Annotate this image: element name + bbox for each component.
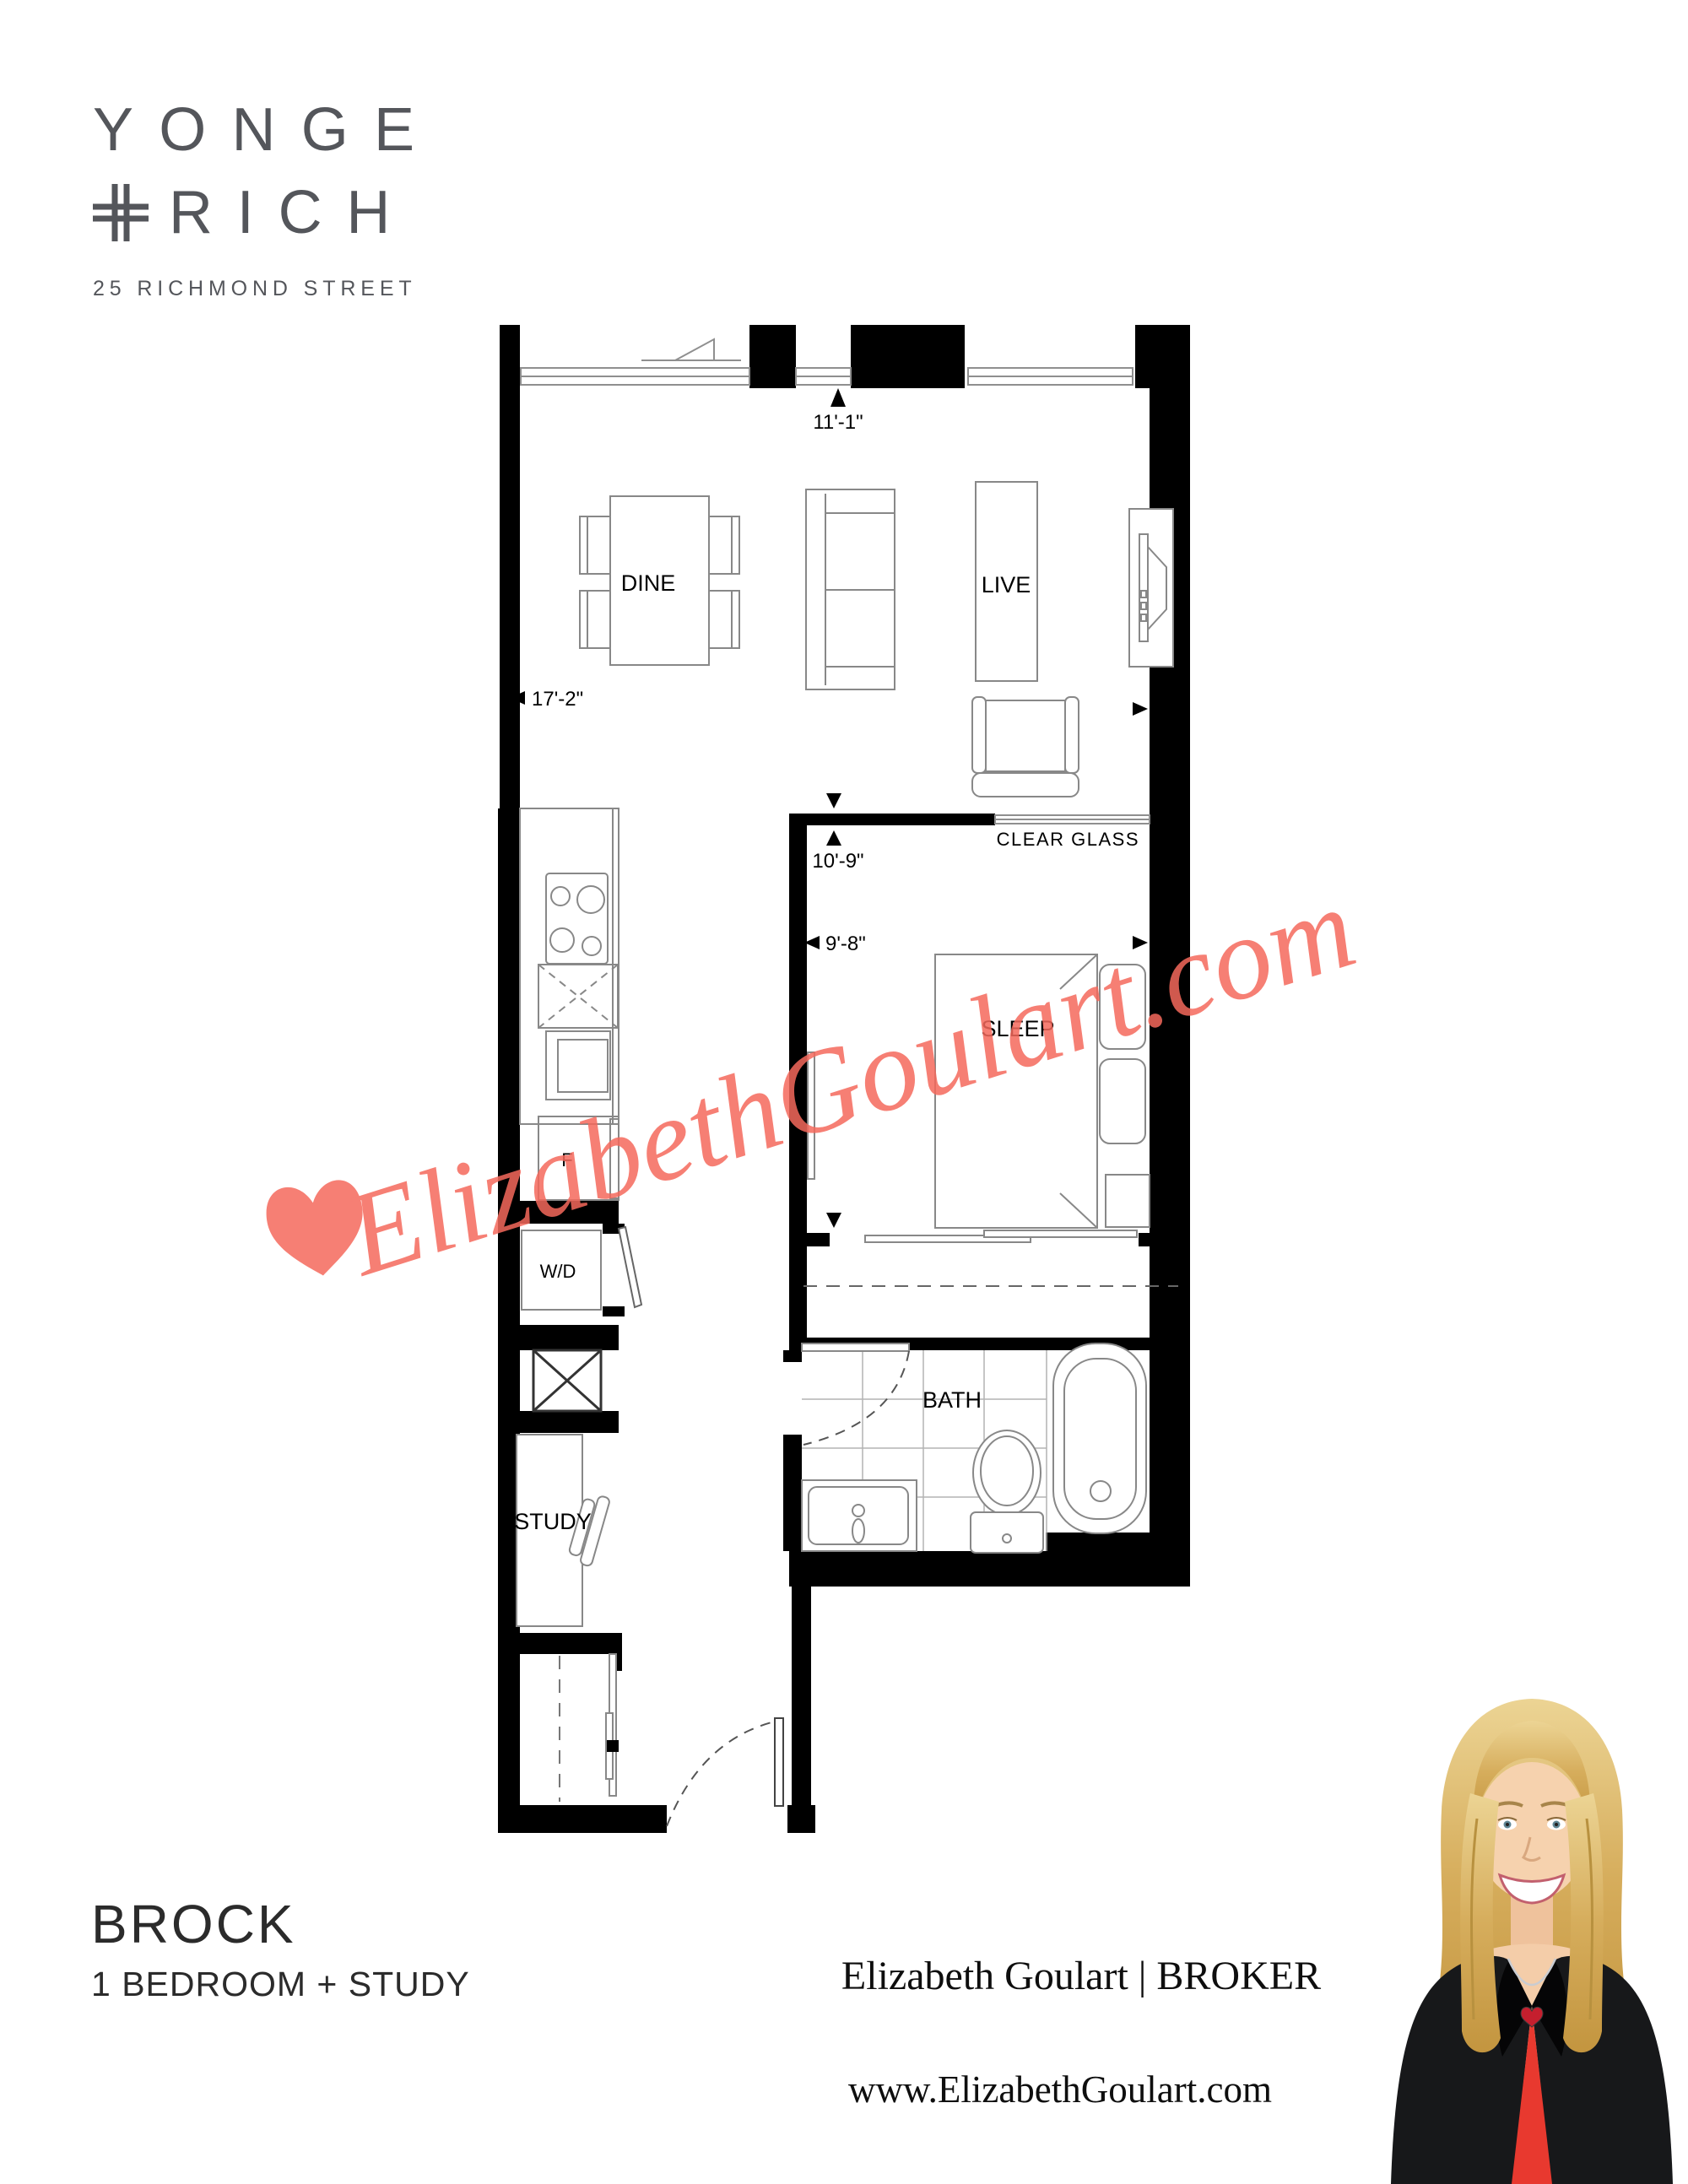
bath-label: BATH [922,1387,982,1413]
dim-arrow-up-icon [830,388,846,407]
window-band [521,368,1133,385]
bath-door [802,1343,909,1445]
bed-icon [935,954,1150,1228]
logo-line2: RICH [93,179,440,246]
logo-line2-word: RICH [169,182,414,243]
dim-bedroom-width: 9'-8" [825,933,866,955]
sofa-icon [806,489,895,689]
sleep-label: SLEEP [981,1016,1054,1041]
dim-living-depth: 10'-9" [812,850,863,873]
clear-glass-label: CLEAR GLASS [997,829,1139,850]
dim-window-width: 11'-1" [813,411,863,434]
flyer-page: YONGE RICH 25 RICHMOND STREET [0,0,1688,2184]
fridge-label: F [561,1149,572,1170]
floor-plan: CLEAR GLASS F [473,312,1207,1840]
armchair-icon [972,697,1079,797]
logo-line1: YONGE [93,100,440,160]
washer-dryer-label: W/D [540,1261,576,1282]
kitchen-counter [520,808,619,1124]
dim-arrow-right-icon [1133,702,1148,716]
closet-x-icon [533,1350,601,1411]
toilet-icon [971,1430,1043,1553]
dim-arrow-down-icon [826,1213,841,1228]
entry-closet [560,1654,619,1802]
dim-arrow-right-icon [1133,936,1148,949]
dim-living-width: 17'-2" [532,688,583,711]
logo-address: 25 RICHMOND STREET [93,277,440,301]
dim-arrow-up-icon [826,830,841,846]
tv-unit-icon [1129,509,1173,667]
bathtub-icon [1053,1343,1146,1533]
heart-icon [262,1177,371,1282]
live-label: LIVE [982,572,1031,597]
fridge-icon [538,1116,619,1200]
unit-name: BROCK [91,1897,470,1951]
entry-door [667,1718,783,1826]
unit-title-block: BROCK 1 BEDROOM + STUDY [91,1897,470,2004]
broker-name-line: Elizabeth Goulart | BROKER [828,1953,1334,1999]
window-flag-icon [641,339,741,360]
dim-arrow-down-icon [826,793,841,808]
dine-label: DINE [621,570,676,596]
double-plus-icon [93,179,149,246]
unit-type: 1 BEDROOM + STUDY [91,1965,470,2004]
broker-website: www.ElizabethGoulart.com [798,2068,1322,2111]
yonge-rich-logo: YONGE RICH 25 RICHMOND STREET [93,100,440,301]
clear-glass-partition [995,815,1150,824]
study-label: STUDY [514,1509,592,1534]
vanity-sink-icon [802,1480,917,1551]
broker-photo [1376,1675,1688,2184]
